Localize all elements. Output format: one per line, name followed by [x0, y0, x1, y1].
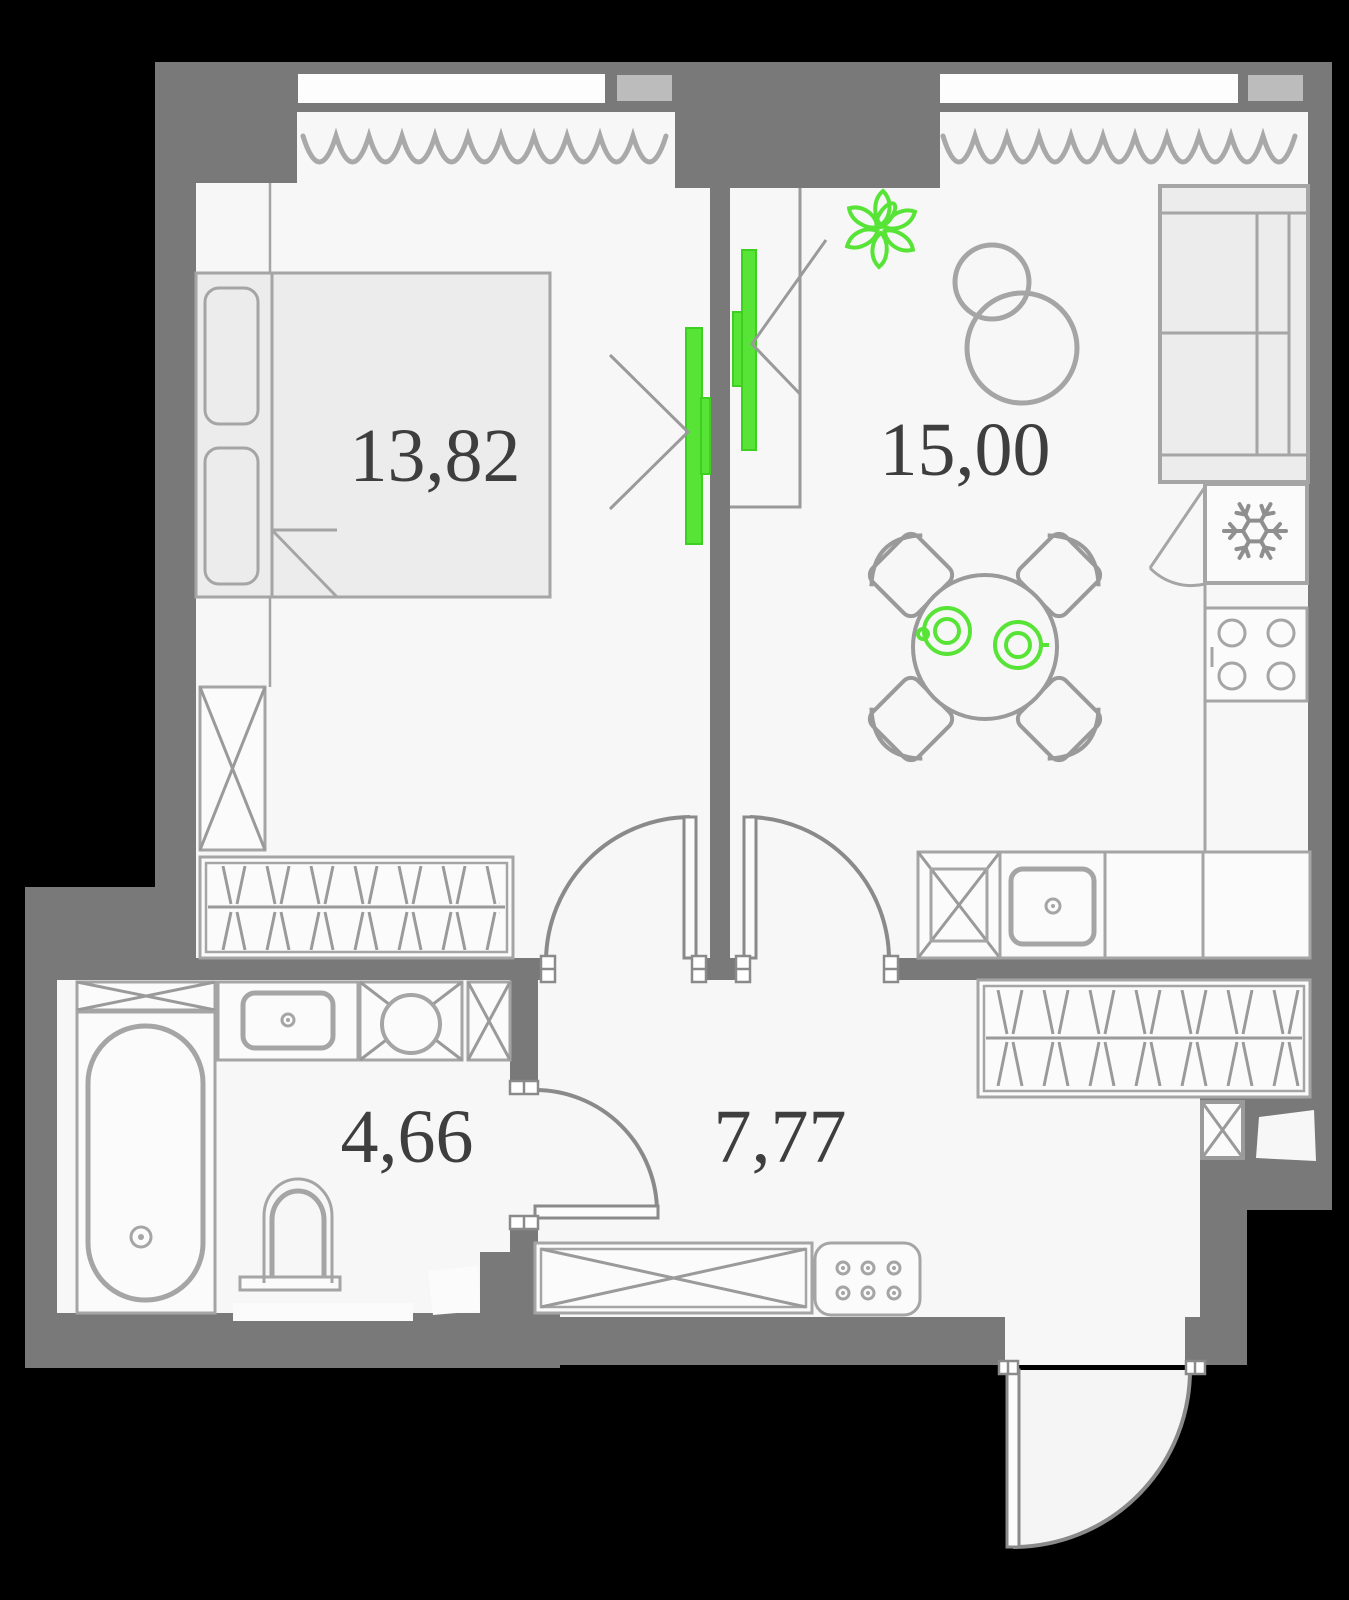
bath-cabinet	[468, 982, 510, 1060]
vanity-sink	[218, 982, 358, 1060]
living-window-sill	[1248, 75, 1303, 101]
sofa	[1160, 186, 1308, 482]
washing-machine	[360, 982, 462, 1060]
hall-cabinet	[1202, 1102, 1243, 1158]
bedroom-window-sill	[617, 75, 672, 101]
area-label-bathroom: 4,66	[341, 1095, 474, 1179]
kitchen-counter	[918, 852, 1310, 958]
tv-bracket	[733, 312, 742, 386]
area-label-living-kitchen: 15,00	[880, 408, 1051, 492]
entry-mat	[1256, 1110, 1316, 1161]
bedroom-wardrobe	[200, 857, 513, 958]
dishwasher	[918, 852, 1000, 958]
bath-mat	[428, 1266, 480, 1315]
bath-threshold	[233, 1303, 413, 1321]
partition-wall	[710, 188, 730, 980]
living-window	[940, 74, 1238, 103]
floor-plan-svg: 13,82 15,00 4,66 7,77	[0, 0, 1349, 1600]
towel-dryer	[77, 982, 215, 1010]
stove	[1205, 608, 1307, 701]
bathtub	[77, 1012, 215, 1313]
shoe-cabinet	[815, 1243, 920, 1315]
entry-door	[1007, 1370, 1190, 1547]
tv-bracket	[701, 398, 710, 474]
ventilation-shaft	[200, 687, 265, 850]
hallway-wardrobe	[978, 980, 1310, 1097]
storage-bench	[535, 1243, 812, 1313]
dining-table	[913, 575, 1057, 719]
floor-plan: 13,82 15,00 4,66 7,77	[0, 0, 1349, 1600]
area-label-hallway: 7,77	[714, 1095, 847, 1179]
bedroom-window	[298, 74, 605, 103]
area-label-bedroom: 13,82	[350, 414, 521, 498]
